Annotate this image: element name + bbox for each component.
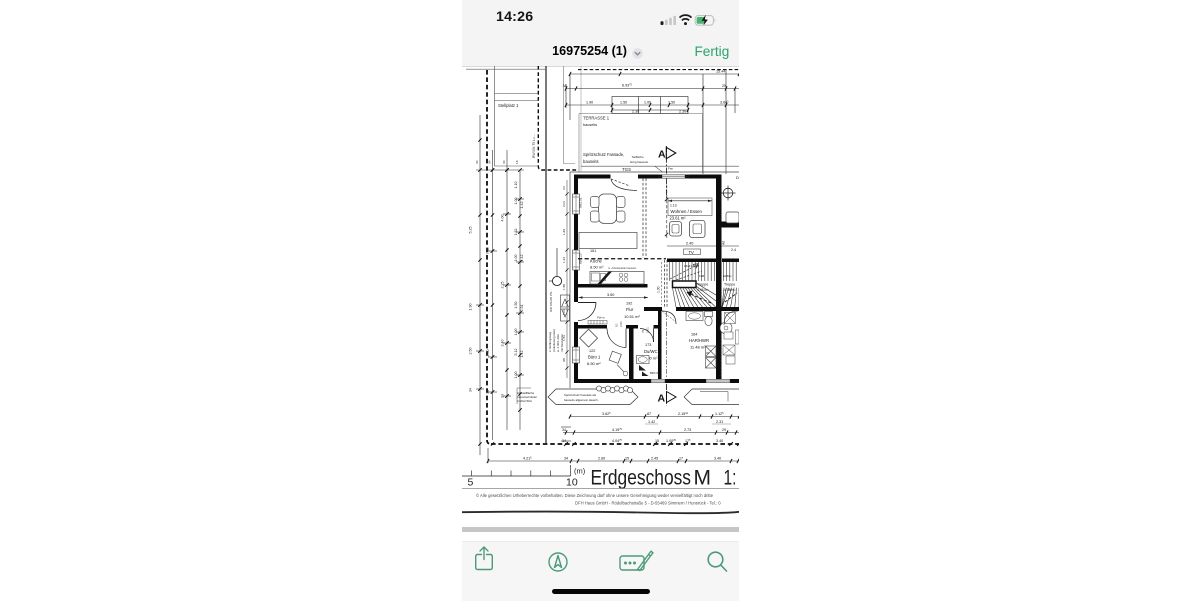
svg-text:34: 34: [502, 160, 506, 164]
svg-text:1.00: 1.00: [514, 255, 518, 262]
svg-text:1.90: 1.90: [469, 304, 473, 311]
svg-text:RW DN100 PN...: RW DN100 PN...: [549, 289, 553, 312]
svg-text:Du/WC: Du/WC: [644, 349, 658, 354]
svg-text:TV: TV: [689, 250, 695, 255]
svg-text:2.60: 2.60: [598, 456, 605, 460]
svg-text:2.50: 2.50: [486, 350, 490, 357]
svg-text:164: 164: [691, 333, 697, 337]
svg-text:7.30: 7.30: [486, 248, 490, 255]
svg-text:2.73: 2.73: [684, 428, 691, 432]
svg-text:173: 173: [645, 343, 651, 347]
svg-text:2.31: 2.31: [716, 420, 723, 424]
svg-text:1.82: 1.82: [514, 229, 518, 236]
svg-text:Ad: Ad: [722, 241, 726, 245]
svg-text:3.40: 3.40: [501, 340, 505, 347]
svg-text:Treppe: Treppe: [724, 283, 735, 287]
svg-text:3.40: 3.40: [714, 456, 721, 460]
svg-text:34: 34: [488, 160, 492, 164]
svg-text:25: 25: [722, 84, 726, 88]
svg-text:1.00: 1.00: [657, 286, 661, 293]
svg-text:RW DN 75 L=...: RW DN 75 L=...: [532, 134, 536, 158]
svg-text:2.1544: 2.1544: [678, 412, 688, 416]
svg-text:34: 34: [562, 439, 566, 443]
svg-text:HAR/HWR: HAR/HWR: [689, 338, 709, 343]
svg-text:88/2.01: 88/2.01: [579, 197, 583, 208]
svg-text:1.50: 1.50: [514, 302, 518, 309]
svg-text:1.50: 1.50: [620, 100, 627, 104]
svg-text:1.10: 1.10: [514, 182, 518, 189]
svg-text:A: A: [658, 393, 666, 405]
svg-text:2.01: 2.01: [562, 201, 566, 207]
svg-text:10.51 m²: 10.51 m²: [624, 314, 640, 319]
svg-text:106: 106: [699, 274, 704, 278]
svg-text:2.25: 2.25: [501, 282, 505, 289]
svg-text:© Alle gesetzlichen Urheberrec: © Alle gesetzlichen Urheberrechte vorbeh…: [476, 493, 714, 498]
svg-text:1.51: 1.51: [562, 335, 566, 341]
svg-text:Büro 1: Büro 1: [588, 355, 601, 360]
svg-text:4.0475: 4.0475: [612, 439, 622, 443]
svg-text:6.9375: 6.9375: [622, 84, 632, 88]
svg-text:1.50: 1.50: [668, 100, 675, 104]
svg-text:bauseits: bauseits: [583, 123, 597, 127]
svg-text:4.00: 4.00: [501, 215, 505, 222]
svg-text:E159x: E159x: [723, 274, 732, 278]
svg-text:34: 34: [501, 394, 505, 398]
svg-text:Teilfläche: Teilfläche: [632, 155, 644, 159]
svg-text:88: 88: [562, 358, 566, 362]
svg-text:W: W: [706, 351, 709, 355]
svg-text:Fen: Fen: [668, 167, 674, 171]
svg-text:0.60x2.50m: 0.60x2.50m: [517, 399, 533, 403]
svg-text:1:: 1:: [724, 467, 737, 490]
svg-text:17: 17: [679, 456, 683, 460]
svg-text:M: M: [694, 467, 712, 490]
svg-text:bauseits: bauseits: [583, 159, 599, 164]
svg-text:Stellplatz 1: Stellplatz 1: [498, 103, 519, 108]
svg-text:2.30: 2.30: [632, 109, 639, 113]
svg-text:1.23: 1.23: [562, 257, 566, 263]
svg-text:DFH Haus GmbH - Rödelbachstraß: DFH Haus GmbH - Rödelbachstraße 5 - D-55…: [575, 501, 721, 506]
svg-text:10: 10: [566, 477, 578, 489]
svg-text:2.31: 2.31: [520, 305, 524, 312]
svg-text:23.61 m²: 23.61 m²: [670, 216, 687, 221]
svg-text:3.625: 3.625: [602, 412, 611, 416]
svg-text:4.1975: 4.1975: [612, 428, 622, 432]
svg-text:4.58 m²: 4.58 m²: [724, 288, 736, 292]
svg-text:TGS: TGS: [622, 167, 631, 172]
svg-text:87: 87: [647, 412, 651, 416]
svg-text:3.50: 3.50: [607, 293, 614, 297]
svg-text:bauseits allgemein dauerh.: bauseits allgemein dauerh.: [564, 398, 599, 402]
svg-text:2.4: 2.4: [731, 248, 736, 252]
svg-text:5: 5: [468, 477, 474, 489]
svg-text:TERRASSE 1: TERRASSE 1: [583, 116, 610, 121]
svg-text:1.90: 1.90: [586, 100, 593, 104]
svg-text:(m): (m): [574, 467, 586, 476]
svg-text:Fbk-w: Fbk-w: [597, 316, 606, 320]
svg-text:64: 64: [562, 186, 566, 190]
svg-text:15.44: 15.44: [716, 70, 725, 74]
svg-text:192: 192: [626, 302, 632, 306]
svg-text:1.00: 1.00: [514, 198, 518, 205]
svg-text:1.83: 1.83: [562, 229, 566, 235]
svg-text:6.50 m²: 6.50 m²: [587, 361, 601, 366]
svg-text:34: 34: [486, 390, 490, 394]
svg-text:11.48 m²: 11.48 m²: [690, 345, 706, 350]
svg-text:3.40: 3.40: [716, 439, 723, 443]
svg-text:2.45: 2.45: [651, 456, 658, 460]
svg-text:5.25: 5.25: [469, 227, 473, 234]
svg-text:Küche: Küche: [590, 259, 603, 264]
svg-text:m. Arbeitsplatte bauseits: m. Arbeitsplatte bauseits: [608, 266, 637, 270]
svg-text:1.00: 1.00: [514, 329, 518, 336]
svg-text:fertig bauseits: fertig bauseits: [630, 160, 649, 164]
svg-text:5.12: 5.12: [514, 349, 518, 356]
svg-text:D: D: [736, 175, 739, 180]
svg-text:2.50: 2.50: [469, 348, 473, 355]
svg-text:Erdgeschoss: Erdgeschoss: [591, 467, 692, 490]
svg-text:Flur: Flur: [626, 307, 634, 312]
svg-text:76: 76: [641, 329, 645, 333]
svg-text:A: A: [658, 149, 666, 161]
svg-text:Spritzschutz Fassade als: Spritzschutz Fassade als: [564, 393, 597, 397]
svg-text:Spritzschutz Fassade,: Spritzschutz Fassade,: [583, 152, 624, 157]
svg-text:1.42: 1.42: [520, 351, 524, 358]
svg-text:1.00: 1.00: [644, 100, 651, 104]
svg-text:2.01: 2.01: [619, 321, 623, 327]
svg-text:1.42: 1.42: [648, 420, 655, 424]
svg-text:122: 122: [589, 349, 595, 353]
svg-text:1.125: 1.125: [715, 412, 724, 416]
svg-text:3.645: 3.645: [720, 100, 729, 104]
svg-text:1.01: 1.01: [562, 309, 566, 315]
svg-text:34: 34: [469, 388, 473, 392]
svg-text:15: 15: [515, 160, 519, 164]
svg-text:34: 34: [562, 428, 566, 432]
svg-text:Wohnen / Essen: Wohnen / Essen: [671, 209, 703, 214]
svg-text:1.58: 1.58: [562, 284, 566, 290]
svg-text:1.42: 1.42: [520, 255, 524, 262]
svg-text:2.30: 2.30: [679, 109, 686, 113]
svg-text:BRh WC: BRh WC: [650, 371, 661, 375]
svg-text:2.01: 2.01: [646, 327, 650, 333]
svg-text:161: 161: [590, 249, 596, 253]
svg-text:1.00: 1.00: [514, 372, 518, 379]
svg-text:34: 34: [475, 160, 479, 164]
svg-text:1.42: 1.42: [520, 202, 524, 209]
svg-text:15: 15: [625, 456, 629, 460]
svg-text:8.50 m²: 8.50 m²: [590, 265, 604, 270]
svg-text:2.40: 2.40: [686, 242, 693, 246]
svg-text:34: 34: [563, 84, 567, 88]
svg-text:4.215: 4.215: [523, 456, 532, 460]
svg-text:16x17,5/28: 16x17,5/28: [684, 264, 699, 268]
svg-text:1.13: 1.13: [670, 204, 677, 208]
svg-text:29: 29: [722, 428, 726, 432]
svg-text:34: 34: [564, 456, 568, 460]
svg-text:10: 10: [615, 323, 619, 327]
